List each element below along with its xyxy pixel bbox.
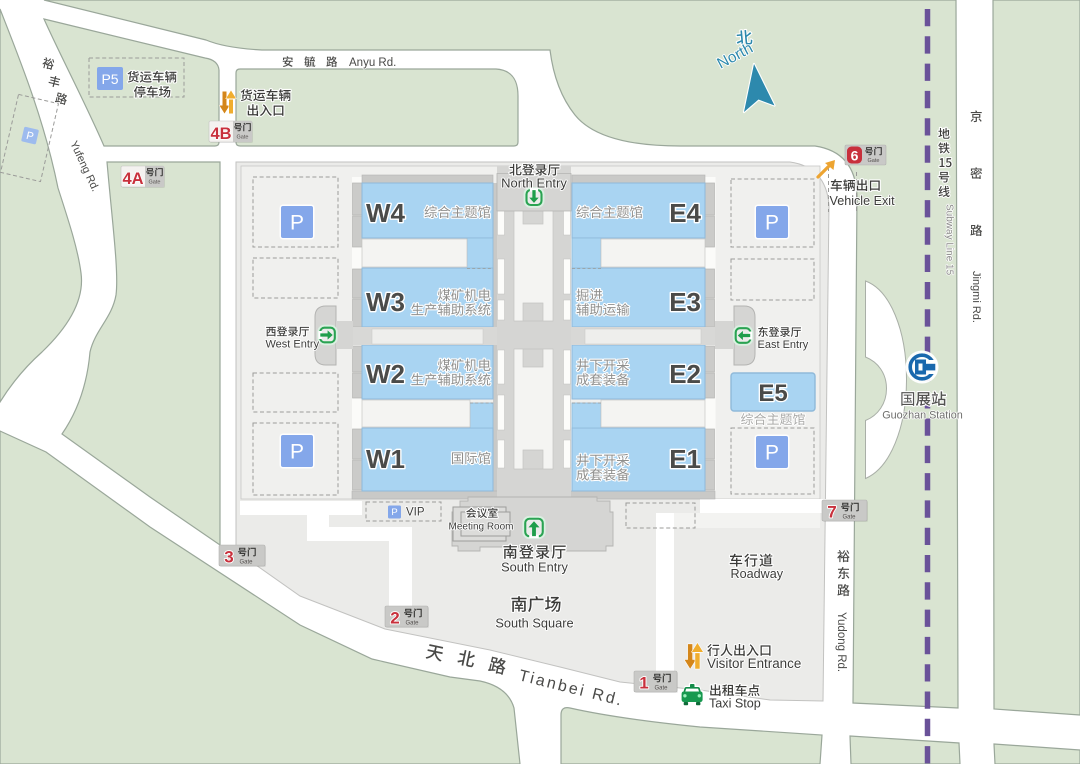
svg-text:E3: E3 — [669, 287, 701, 317]
svg-text:W2: W2 — [366, 359, 405, 389]
svg-text:Gate: Gate — [149, 180, 161, 186]
svg-text:Guozhan Station: Guozhan Station — [882, 410, 962, 422]
svg-text:Gate: Gate — [239, 560, 253, 566]
svg-text:Gate: Gate — [237, 135, 249, 141]
svg-text:P: P — [290, 212, 304, 235]
svg-text:North Entry: North Entry — [501, 176, 567, 191]
svg-text:Meeting Room: Meeting Room — [448, 522, 513, 533]
svg-text:6: 6 — [851, 148, 859, 164]
svg-text:Gate: Gate — [868, 158, 880, 164]
svg-text:Anyu Rd.: Anyu Rd. — [349, 57, 396, 69]
svg-text:E4: E4 — [669, 198, 701, 228]
svg-text:W4: W4 — [366, 198, 406, 228]
svg-text:Taxi Stop: Taxi Stop — [709, 697, 761, 711]
svg-text:Gate: Gate — [405, 621, 419, 627]
svg-text:Jingmi Rd.: Jingmi Rd. — [970, 271, 982, 323]
svg-text:E1: E1 — [669, 444, 701, 474]
svg-text:P: P — [765, 212, 779, 235]
svg-text:VIP: VIP — [406, 507, 425, 519]
svg-text:East Entry: East Entry — [758, 339, 809, 351]
svg-text:Gate: Gate — [842, 515, 856, 521]
svg-text:P5: P5 — [101, 71, 118, 87]
svg-text:Roadway: Roadway — [731, 567, 784, 581]
svg-text:W1: W1 — [366, 444, 405, 474]
svg-text:W3: W3 — [366, 287, 405, 317]
svg-text:Visitor Entrance: Visitor Entrance — [707, 656, 801, 671]
svg-text:Subway Line 15: Subway Line 15 — [944, 204, 955, 276]
svg-text:E5: E5 — [758, 380, 787, 407]
svg-text:Gate: Gate — [654, 686, 668, 692]
svg-text:West Entry: West Entry — [266, 339, 320, 351]
svg-text:Vehicle Exit: Vehicle Exit — [830, 194, 896, 208]
svg-text:P: P — [290, 441, 304, 464]
svg-text:E2: E2 — [669, 359, 701, 389]
svg-text:4B: 4B — [210, 125, 231, 143]
svg-text:7: 7 — [827, 503, 836, 522]
svg-text:South Square: South Square — [495, 616, 573, 631]
svg-text:4A: 4A — [122, 170, 143, 188]
svg-text:3: 3 — [224, 548, 233, 567]
svg-text:2: 2 — [390, 609, 399, 628]
svg-text:1: 1 — [639, 674, 648, 693]
svg-text:P: P — [765, 442, 779, 465]
svg-text:Yudong Rd.: Yudong Rd. — [835, 612, 847, 672]
svg-text:P: P — [391, 507, 397, 518]
svg-text:South Entry: South Entry — [501, 560, 568, 575]
